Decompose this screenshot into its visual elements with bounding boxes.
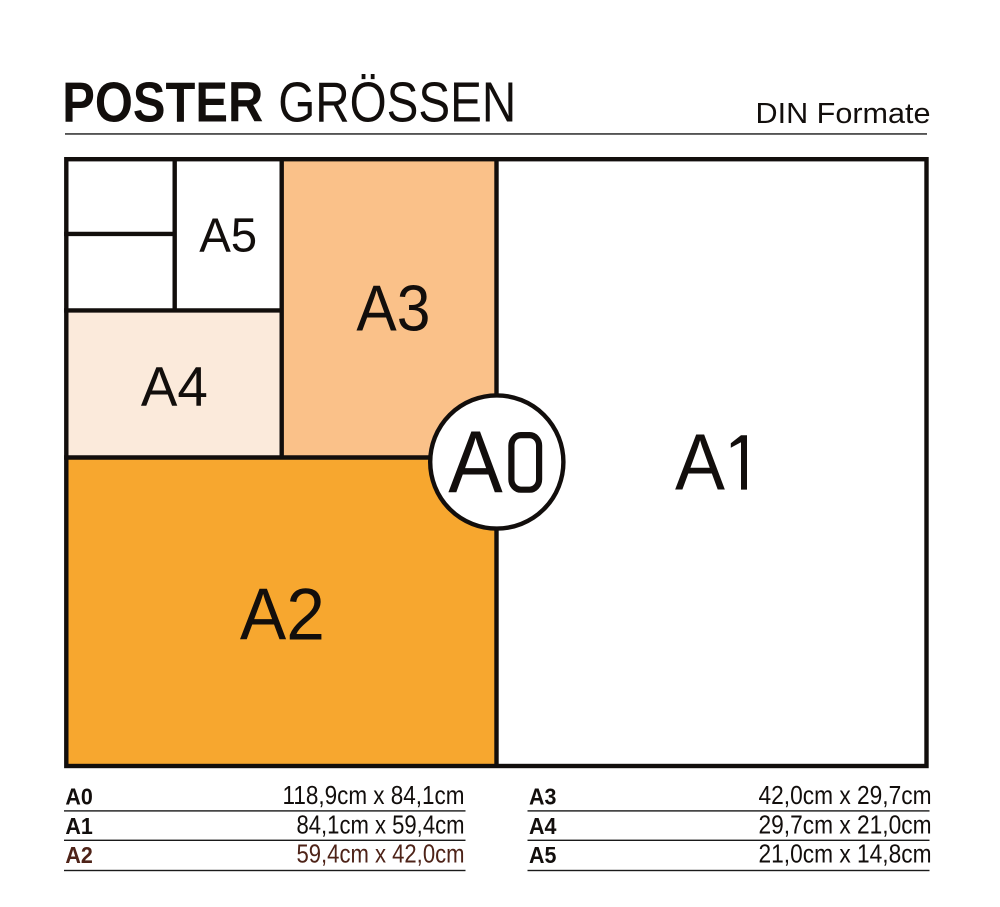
svg-text:A2: A2 [240, 574, 325, 656]
svg-text:A4: A4 [529, 813, 556, 839]
svg-text:A1: A1 [65, 813, 92, 839]
svg-text:A4: A4 [141, 355, 208, 418]
svg-text:84,1cm x 59,4cm: 84,1cm x 59,4cm [297, 811, 465, 839]
svg-text:A5: A5 [199, 209, 257, 263]
svg-text:GRÖSSEN: GRÖSSEN [278, 71, 516, 135]
svg-text:A0: A0 [65, 784, 92, 810]
svg-text:A3: A3 [529, 784, 556, 810]
svg-text:DIN Formate: DIN Formate [756, 97, 931, 129]
svg-text:A: A [448, 413, 503, 512]
svg-text:A2: A2 [65, 842, 92, 868]
svg-text:A: A [675, 417, 725, 507]
svg-text:29,7cm x 21,0cm: 29,7cm x 21,0cm [759, 811, 932, 839]
svg-text:A3: A3 [356, 272, 430, 345]
svg-text:59,4cm x 42,0cm: 59,4cm x 42,0cm [297, 841, 465, 869]
svg-text:118,9cm x 84,1cm: 118,9cm x 84,1cm [283, 782, 465, 810]
svg-text:A5: A5 [529, 842, 556, 868]
svg-text:POSTER: POSTER [62, 71, 263, 135]
svg-text:21,0cm x 14,8cm: 21,0cm x 14,8cm [759, 841, 932, 869]
svg-text:42,0cm x 29,7cm: 42,0cm x 29,7cm [759, 782, 932, 810]
